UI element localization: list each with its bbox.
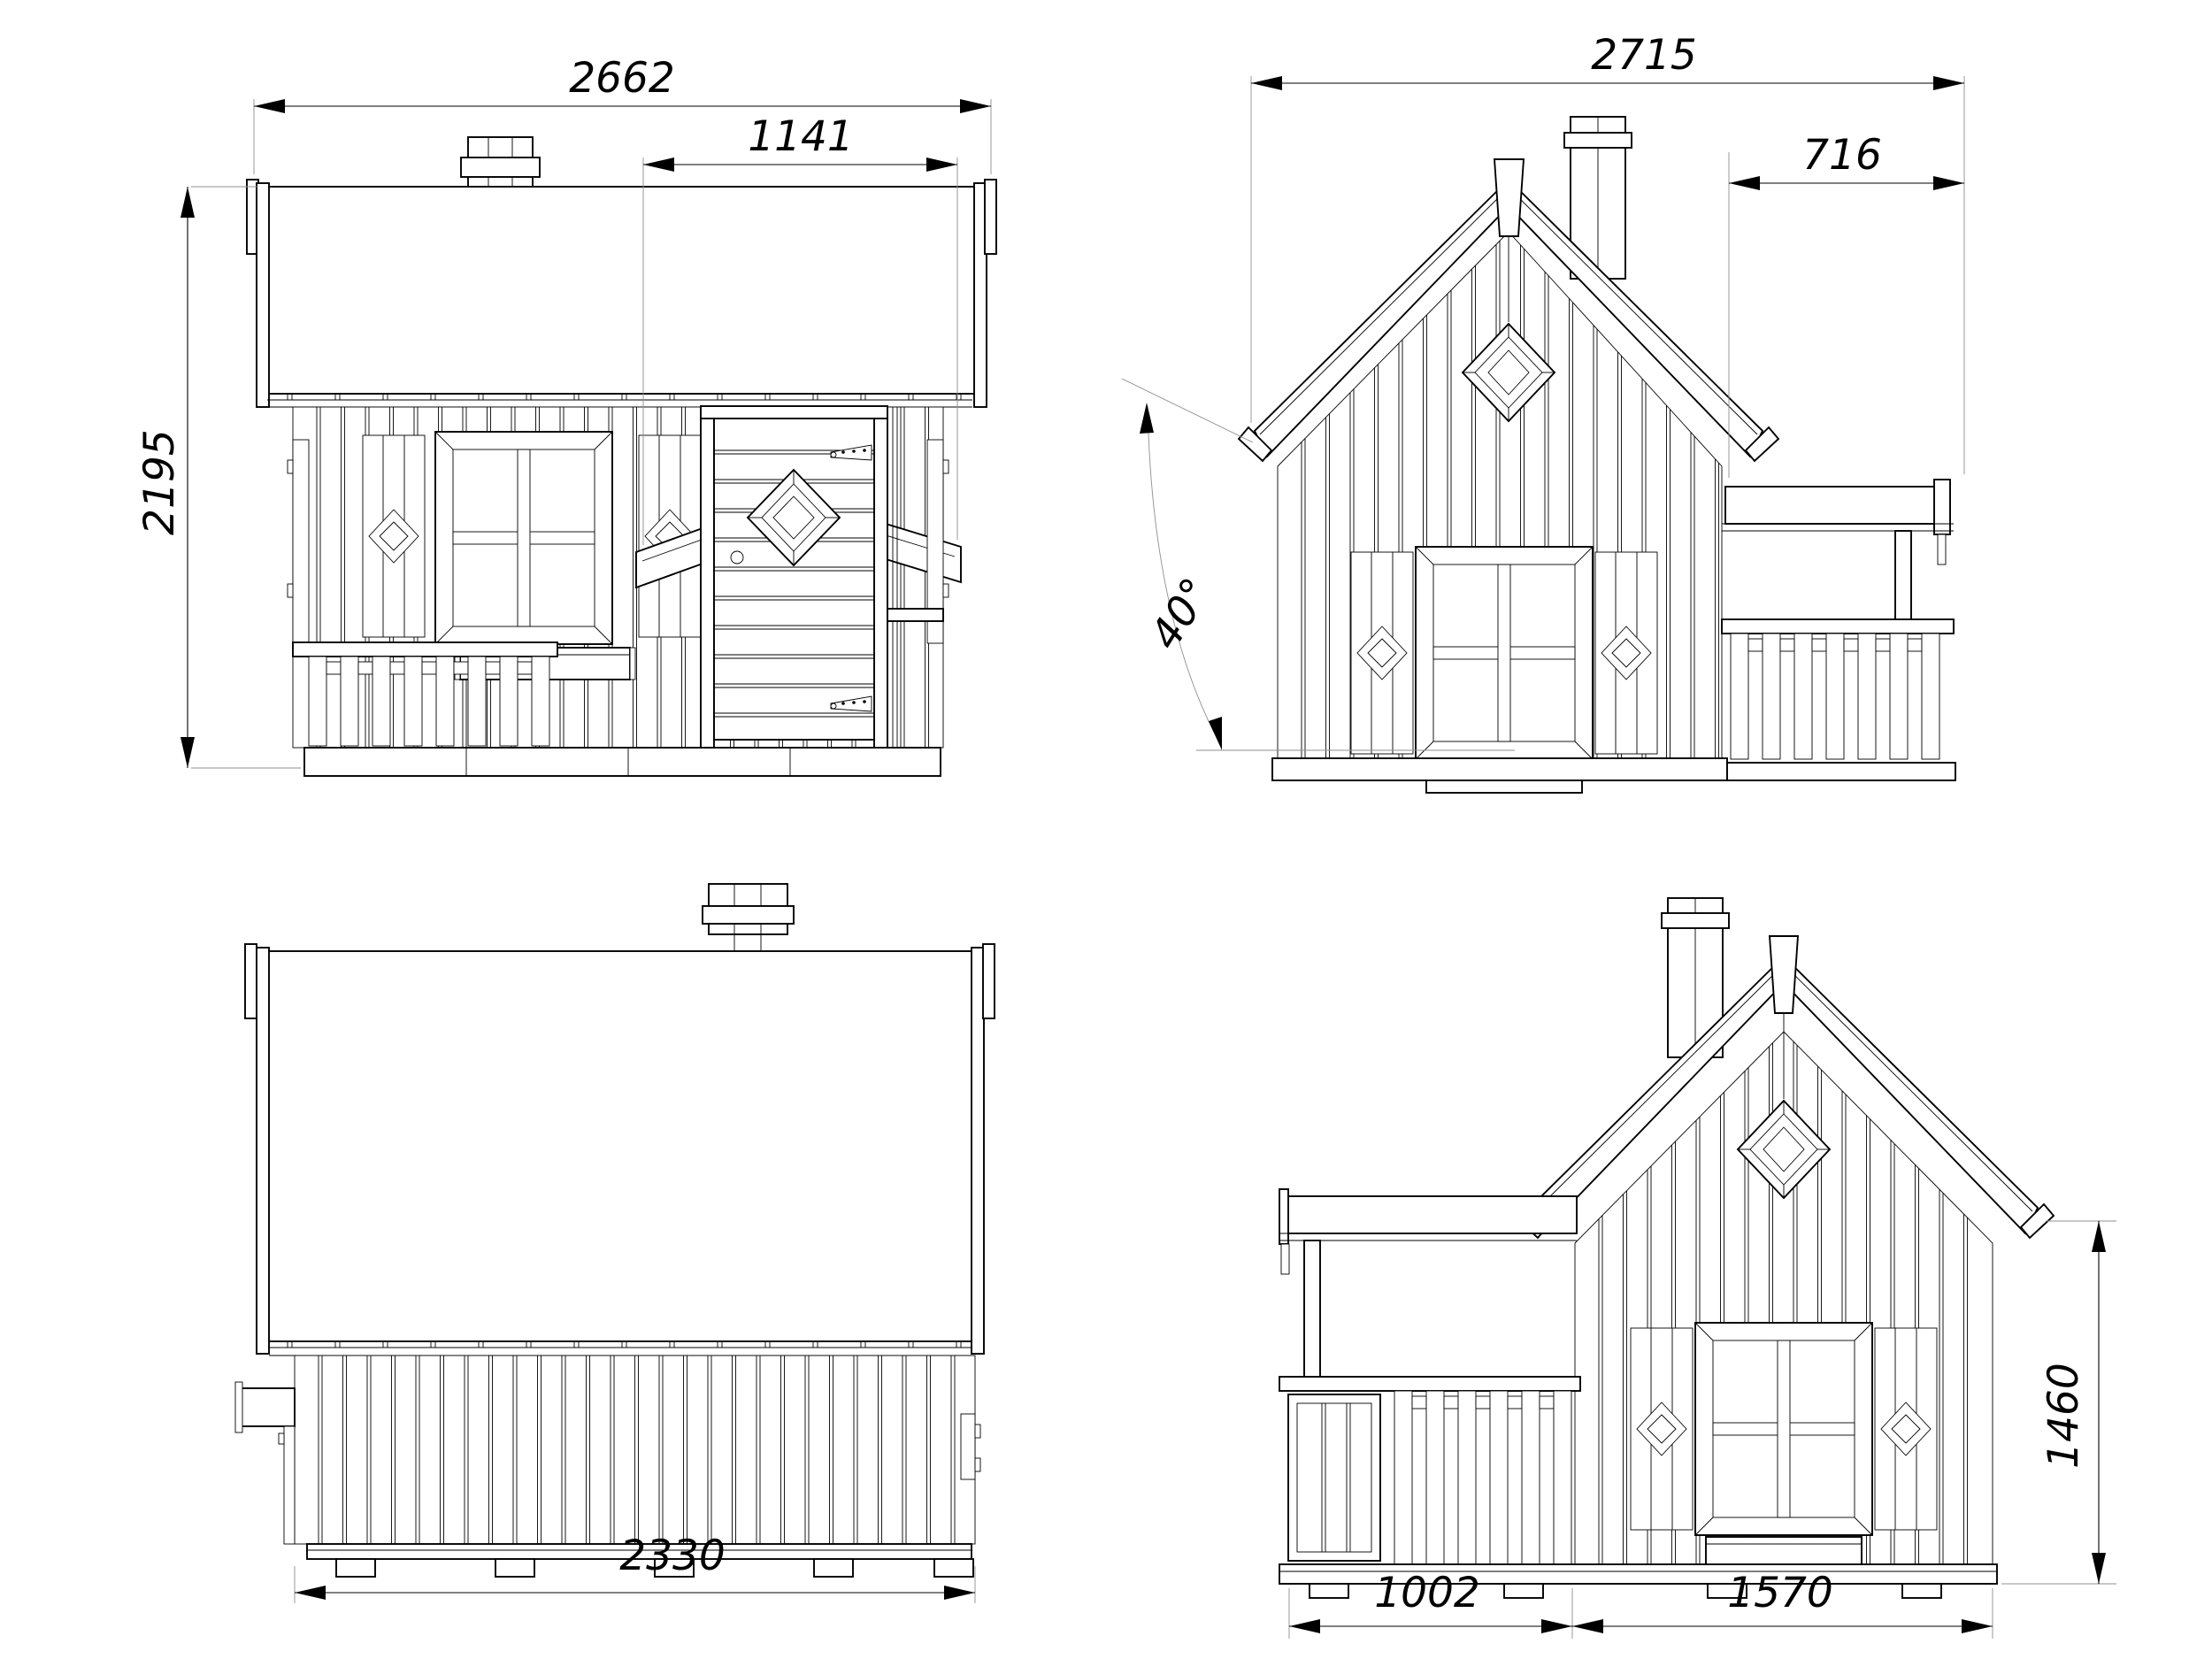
dim-terrace-width: 1002	[1374, 1569, 1480, 1617]
drawing-sheet: 2662 1141 2195 2715 716 40° 2330 1002 15…	[0, 0, 2212, 1659]
side-elevation-view-terrace-right	[1239, 117, 1955, 793]
dim-house-depth: 1570	[1727, 1569, 1833, 1617]
dim-roof-angle: 40°	[1141, 570, 1221, 658]
dim-side-terrace-depth: 716	[1802, 131, 1882, 180]
rear-elevation-view	[235, 884, 995, 1577]
side-elevation-view-terrace-left	[1279, 898, 2054, 1598]
dim-side-overall-depth: 2715	[1591, 31, 1697, 80]
dim-rear-wall-width: 2330	[619, 1532, 726, 1580]
technical-drawing-canvas: 2662 1141 2195 2715 716 40° 2330 1002 15…	[0, 0, 2212, 1659]
dim-front-door-bay-width: 1141	[748, 112, 854, 161]
front-elevation-view	[247, 137, 996, 776]
dim-front-overall-height: 2195	[135, 429, 184, 535]
dim-front-overall-width: 2662	[569, 54, 675, 103]
dim-eave-height: 1460	[2039, 1363, 2088, 1469]
